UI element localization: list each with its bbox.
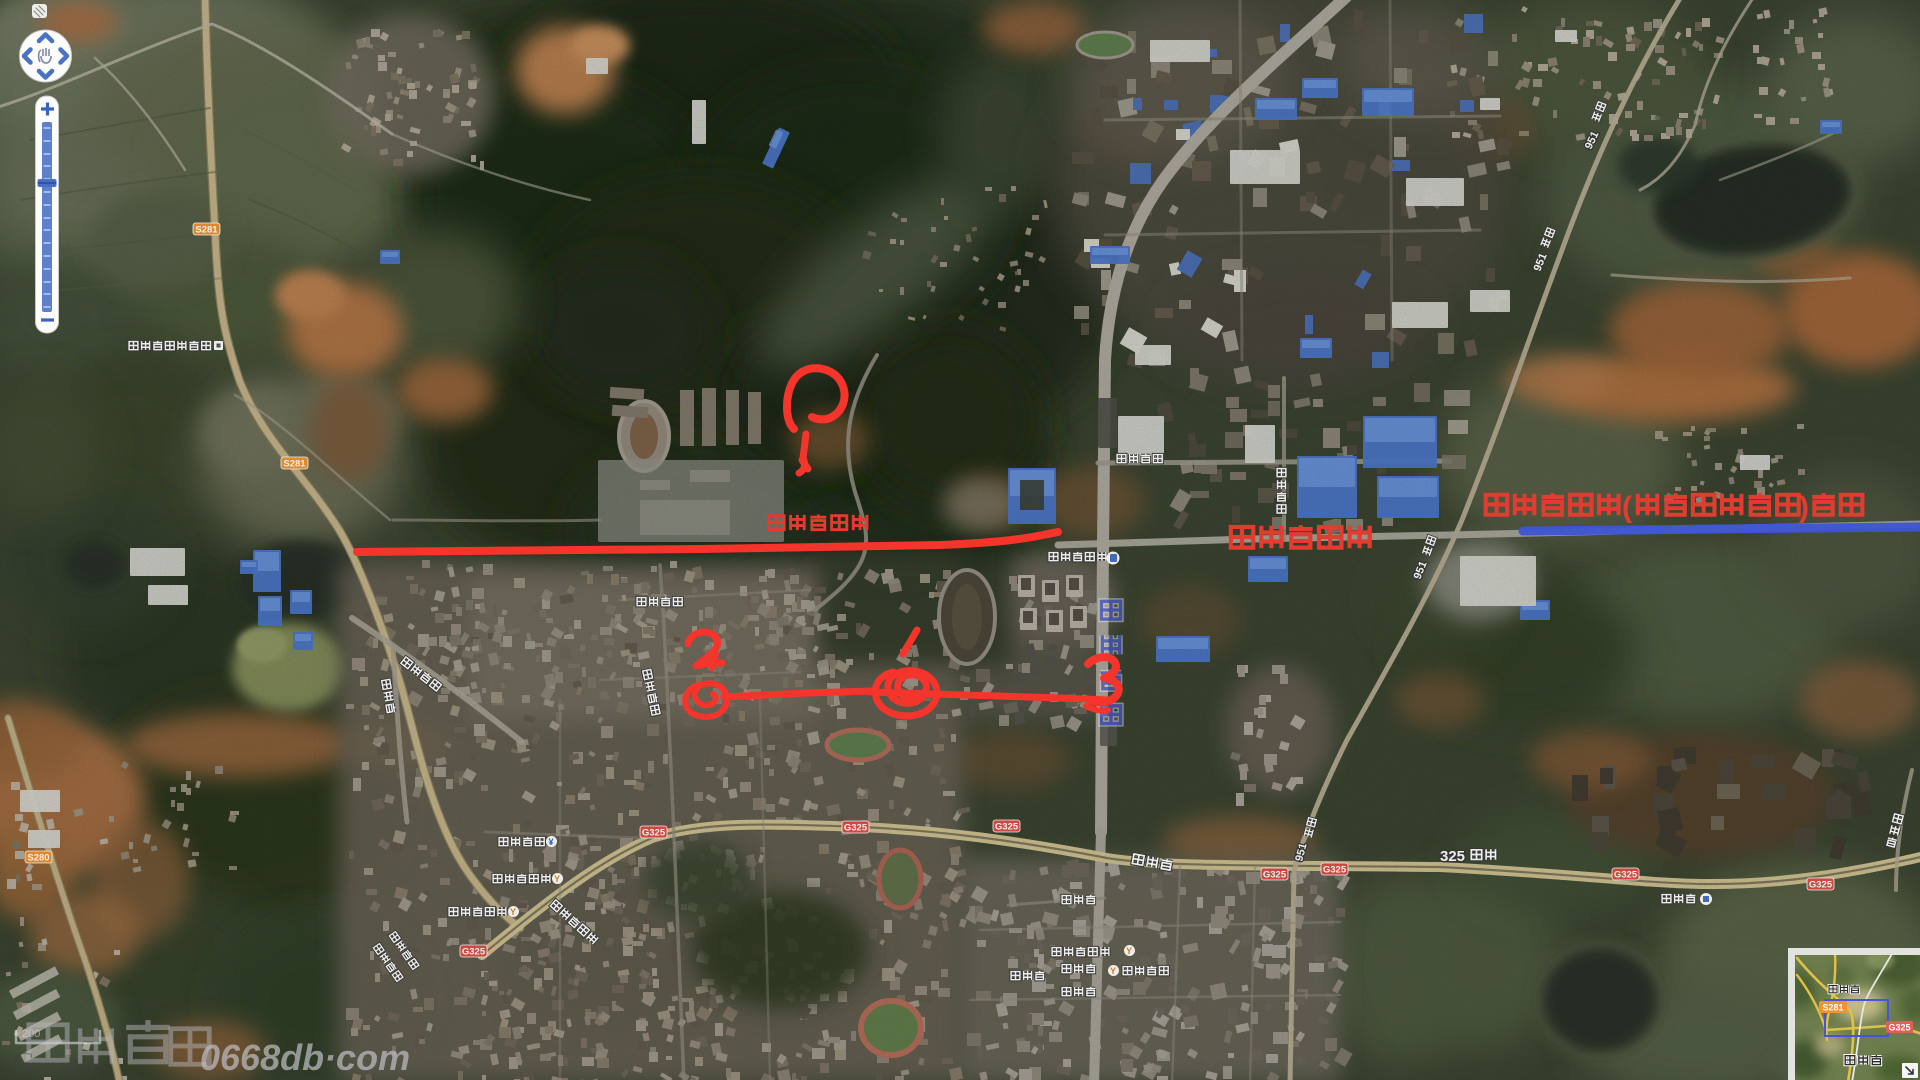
svg-text:S281: S281 (1822, 1003, 1843, 1013)
svg-text:): ) (1799, 491, 1809, 524)
svg-text:G325: G325 (1888, 1023, 1910, 1033)
svg-text:(: ( (1622, 491, 1632, 524)
